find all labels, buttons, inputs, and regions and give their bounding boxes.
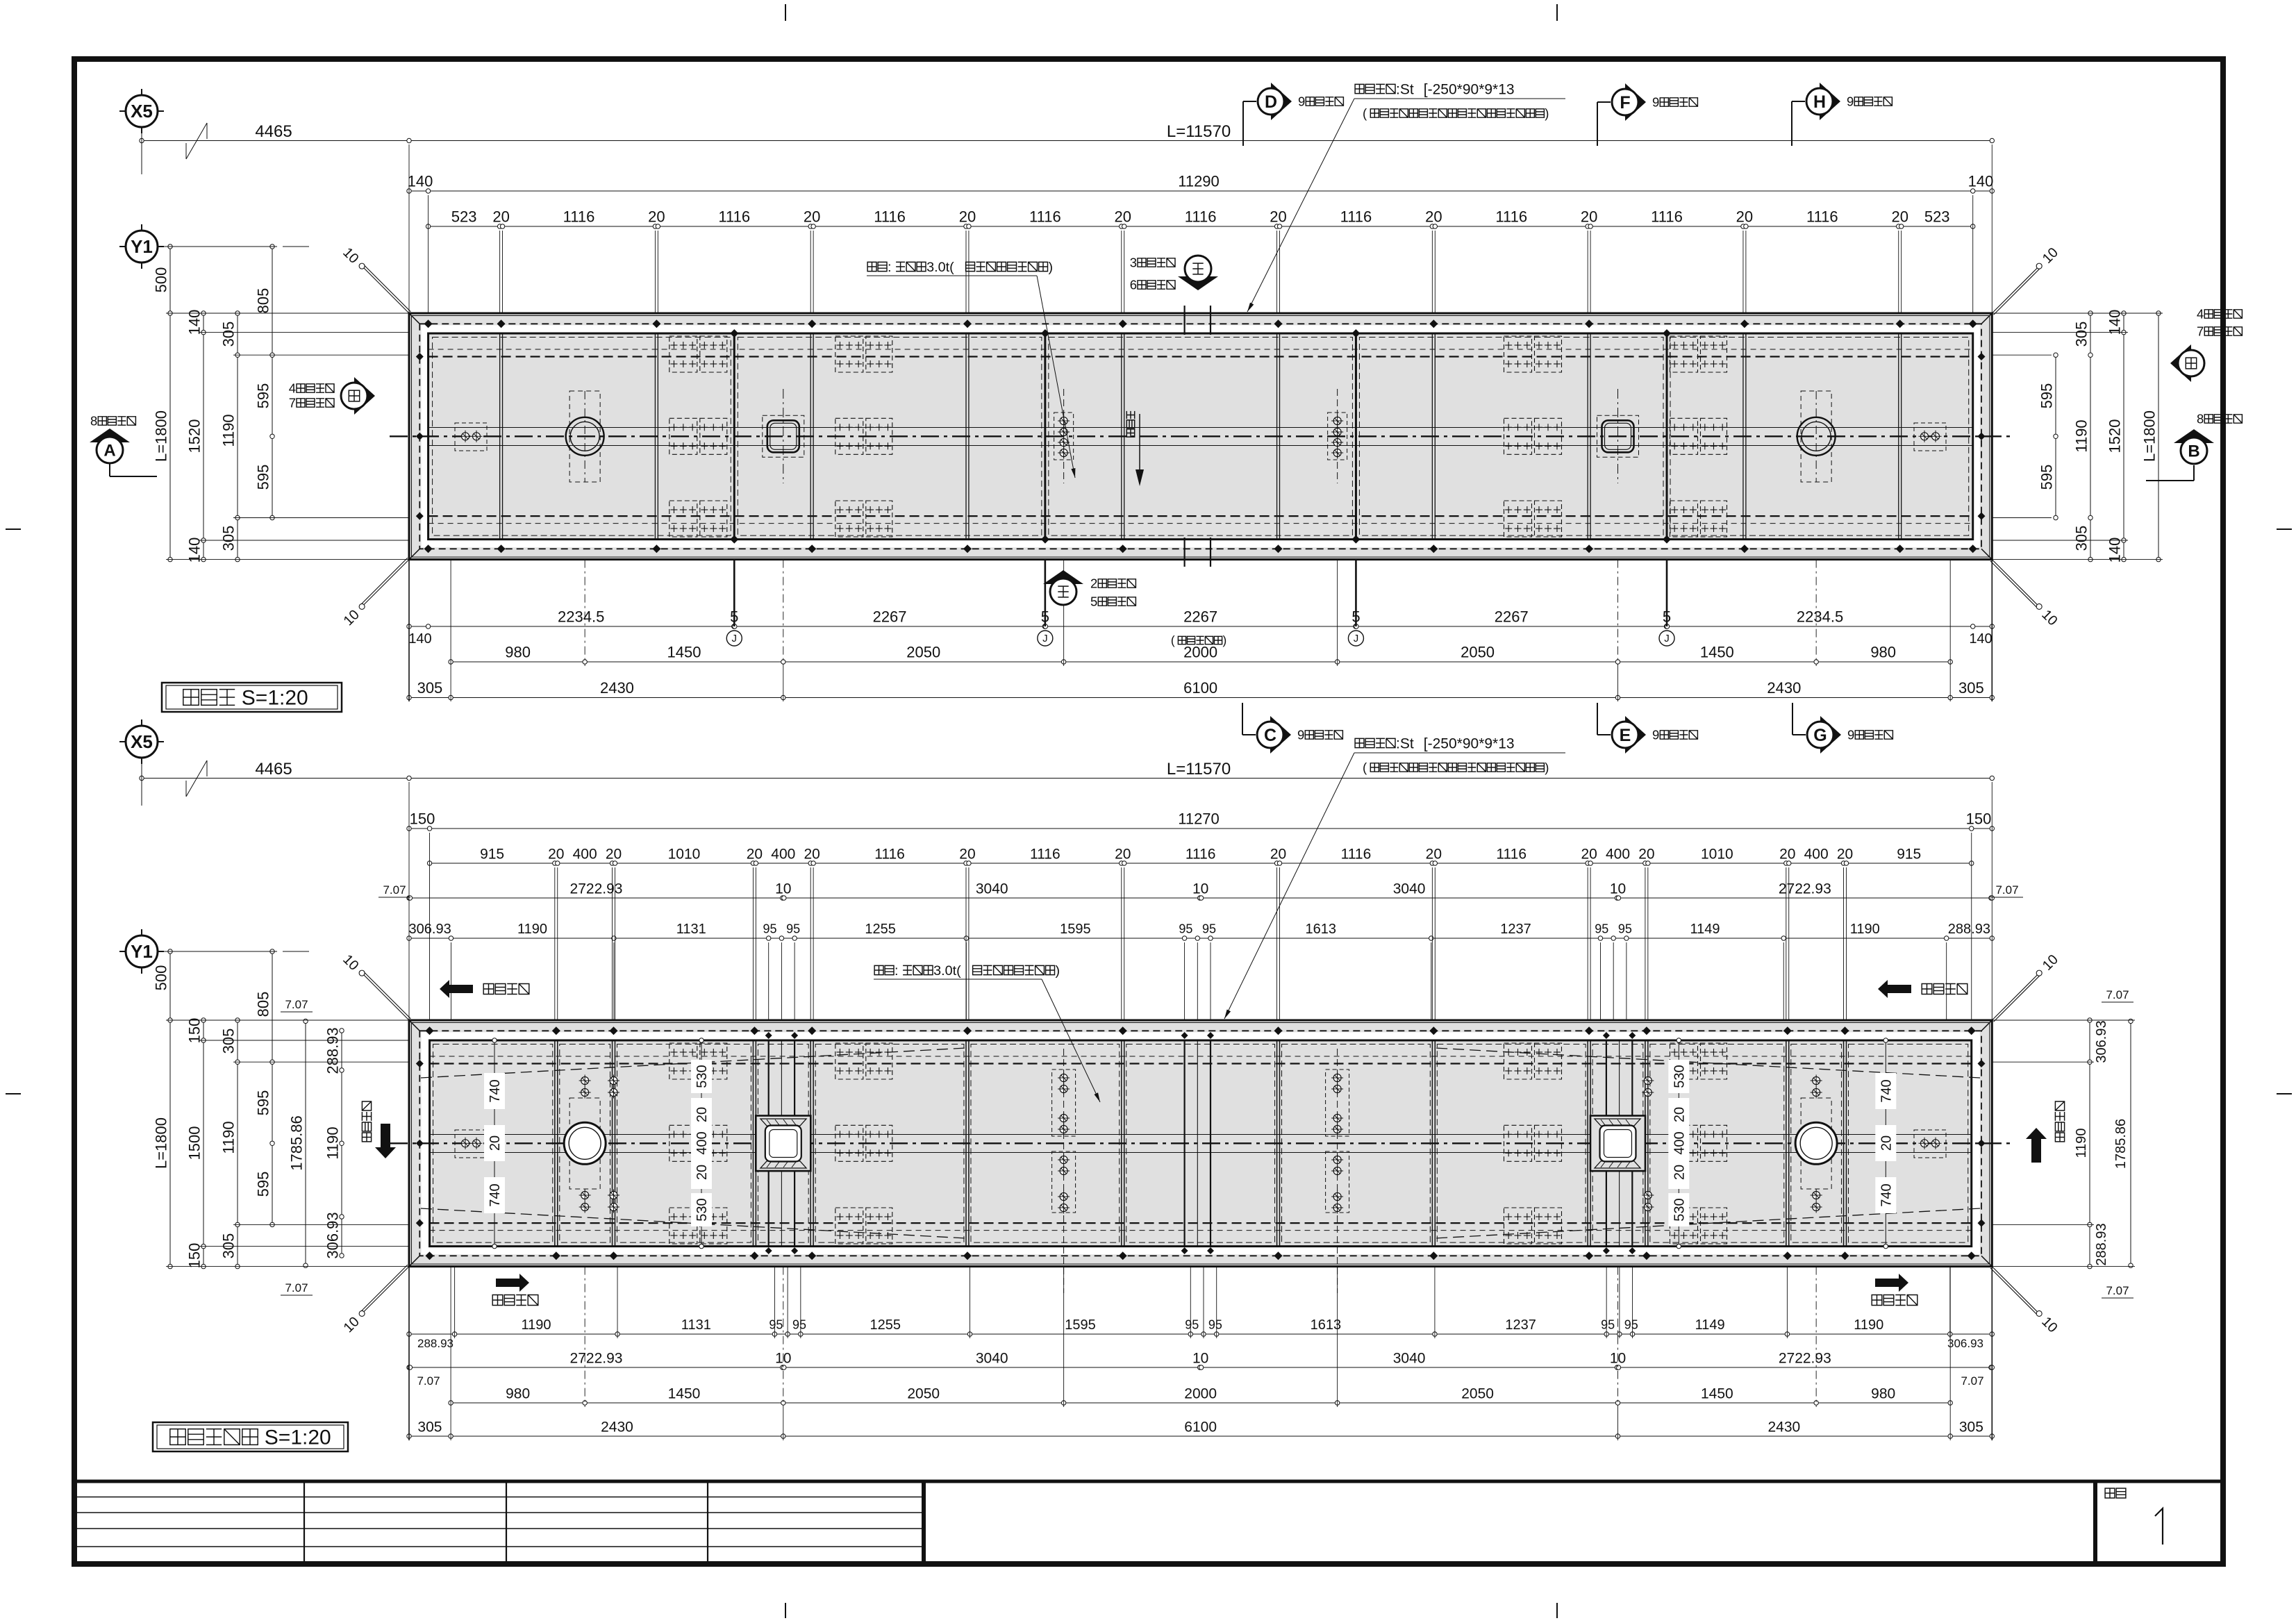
svg-text:288.93: 288.93 [417,1337,454,1350]
svg-text:523: 523 [451,208,477,226]
svg-text:20: 20 [1270,846,1286,862]
svg-text:3: 3 [1130,256,1137,270]
svg-text:J: J [732,633,738,644]
svg-text:4465: 4465 [255,122,292,141]
svg-text:150: 150 [1966,810,1992,828]
svg-text:1149: 1149 [1695,1317,1725,1333]
svg-text:3.0t(: 3.0t( [933,963,961,979]
svg-text:400: 400 [694,1131,710,1154]
svg-text:140: 140 [408,173,433,190]
svg-text:740: 740 [488,1079,503,1102]
svg-text:S=1:20: S=1:20 [242,687,308,710]
svg-text:1116: 1116 [1496,846,1526,862]
svg-text:7.07: 7.07 [285,1281,308,1295]
svg-text:6: 6 [1130,278,1137,292]
svg-text:400: 400 [771,846,795,862]
svg-text:95: 95 [1185,1317,1199,1331]
svg-text:1237: 1237 [1505,1317,1536,1333]
svg-text:20: 20 [1270,208,1286,226]
svg-text:140: 140 [1968,173,1994,190]
svg-text:288.93: 288.93 [1948,922,1990,937]
svg-text:9: 9 [1847,728,1854,742]
svg-text:7.07: 7.07 [2106,1284,2129,1297]
svg-text:20: 20 [1779,846,1795,862]
svg-text:288.93: 288.93 [324,1027,342,1074]
svg-text:95: 95 [769,1317,783,1331]
svg-text:L=1800: L=1800 [153,1117,170,1169]
svg-text:8: 8 [2197,412,2204,426]
svg-text:150: 150 [186,1018,203,1044]
svg-text:915: 915 [1897,846,1921,862]
svg-text:595: 595 [255,383,272,409]
svg-text:500: 500 [153,965,170,991]
svg-text:1190: 1190 [2073,419,2090,452]
svg-text:Y1: Y1 [131,941,153,962]
svg-text:B: B [2188,442,2199,460]
svg-text:2050: 2050 [907,1385,940,1401]
svg-text:2722.93: 2722.93 [1779,1350,1831,1366]
svg-text:7.07: 7.07 [383,883,406,897]
svg-text:1190: 1190 [1854,1317,1883,1333]
svg-text:2430: 2430 [1767,1419,1800,1435]
svg-text:3040: 3040 [976,881,1008,897]
svg-text:20: 20 [1581,208,1597,226]
svg-text:980: 980 [506,1385,530,1401]
svg-text:9: 9 [1652,95,1659,110]
svg-text:306.93: 306.93 [1947,1337,1983,1350]
svg-text:9: 9 [1847,94,1854,109]
svg-text:805: 805 [255,992,272,1017]
svg-text:10: 10 [1610,881,1626,897]
svg-text:J: J [1354,633,1359,644]
svg-text::: : [895,963,899,979]
svg-text:500: 500 [153,267,170,293]
svg-text:Y1: Y1 [131,236,153,257]
svg-text:595: 595 [255,465,272,490]
svg-text:305: 305 [1958,679,1984,697]
svg-text:[-250*90*9*13: [-250*90*9*13 [1424,735,1515,751]
svg-text:3040: 3040 [976,1350,1008,1366]
svg-text:95: 95 [1618,922,1632,935]
svg-text:1116: 1116 [874,846,905,862]
svg-text:): ) [1545,760,1549,775]
svg-text:5: 5 [1090,594,1097,609]
svg-text:20: 20 [1879,1135,1894,1151]
svg-text:4465: 4465 [255,760,292,779]
svg-text:(: ( [1171,633,1175,647]
svg-text:7: 7 [289,396,296,410]
svg-text:1190: 1190 [1850,922,1880,937]
svg-text:1190: 1190 [522,1317,551,1333]
svg-text:10: 10 [1192,1350,1208,1366]
svg-text:595: 595 [255,1090,272,1116]
svg-text:980: 980 [1870,644,1896,661]
svg-text:400: 400 [1672,1131,1687,1154]
svg-text:): ) [1056,963,1060,979]
svg-text:S=1:20: S=1:20 [265,1426,331,1449]
svg-text:20: 20 [747,846,763,862]
svg-text:1116: 1116 [1341,846,1372,862]
svg-text:2000: 2000 [1184,1385,1217,1401]
svg-text:95: 95 [1179,922,1192,935]
svg-text:523: 523 [1924,208,1950,226]
svg-text:20: 20 [548,846,564,862]
svg-text:E: E [1620,726,1631,745]
svg-text:1500: 1500 [186,1126,203,1160]
svg-text:95: 95 [1208,1317,1222,1331]
svg-text:J: J [1042,633,1048,644]
svg-text:L=1800: L=1800 [2141,410,2158,462]
svg-text:1190: 1190 [2074,1128,2089,1158]
svg-text:95: 95 [1202,922,1216,935]
svg-text:20: 20 [1581,846,1597,862]
svg-text:20: 20 [1837,846,1853,862]
svg-text:305: 305 [417,679,443,697]
svg-text:9: 9 [1297,728,1304,742]
svg-text::St: :St [1396,735,1414,751]
svg-text:530: 530 [1672,1065,1687,1088]
svg-text:2267: 2267 [873,608,907,626]
svg-text:305: 305 [220,1233,238,1259]
svg-text:1116: 1116 [1185,208,1217,226]
svg-text:740: 740 [1879,1183,1894,1206]
svg-text:305: 305 [220,1029,238,1054]
svg-text:1116: 1116 [1495,208,1527,226]
svg-text:6100: 6100 [1184,1419,1217,1435]
svg-text:306.93: 306.93 [409,922,451,937]
svg-text:20: 20 [1115,208,1131,226]
svg-text:9: 9 [1652,728,1659,742]
svg-text:3040: 3040 [1393,1350,1426,1366]
svg-text:530: 530 [1672,1198,1687,1221]
svg-text:(: ( [1363,760,1367,775]
svg-text:C: C [1264,726,1276,745]
svg-text:20: 20 [804,846,820,862]
svg-text:20: 20 [492,208,509,226]
svg-text:740: 740 [488,1183,503,1206]
svg-text:2267: 2267 [1183,608,1217,626]
svg-text:595: 595 [2038,465,2056,490]
svg-text:1450: 1450 [668,1385,701,1401]
svg-text:2000: 2000 [1183,644,1217,661]
svg-text:20: 20 [488,1135,503,1151]
svg-text:1595: 1595 [1065,1317,1096,1333]
svg-text:400: 400 [1804,846,1829,862]
svg-text:1785.86: 1785.86 [2113,1119,2129,1169]
svg-text:1595: 1595 [1060,922,1091,937]
svg-text:95: 95 [1624,1317,1638,1331]
svg-text:7.07: 7.07 [285,998,308,1011]
svg-text:20: 20 [1638,846,1654,862]
svg-text:20: 20 [959,208,976,226]
svg-text:3.0t(: 3.0t( [926,260,954,275]
svg-text:X5: X5 [131,731,153,752]
svg-text:4: 4 [2197,307,2204,322]
svg-text:2: 2 [1090,576,1097,591]
svg-text:305: 305 [1959,1419,1983,1435]
svg-text:J: J [1664,633,1670,644]
svg-text:1190: 1190 [220,1121,238,1154]
svg-text:7.07: 7.07 [2106,988,2129,1001]
svg-text:1450: 1450 [1700,644,1734,661]
svg-text:305: 305 [2073,322,2090,347]
svg-text:2430: 2430 [1767,679,1801,697]
svg-text:F: F [1620,93,1630,113]
svg-text:3040: 3040 [1393,881,1426,897]
svg-text:1613: 1613 [1306,922,1337,937]
svg-text:1116: 1116 [718,208,750,226]
svg-text:1255: 1255 [865,922,896,937]
svg-text:150: 150 [410,810,435,828]
svg-text:740: 740 [1879,1079,1894,1102]
svg-text:20: 20 [694,1165,710,1180]
svg-text:1190: 1190 [220,414,238,447]
svg-text:1116: 1116 [1029,208,1061,226]
svg-text:95: 95 [1601,1317,1615,1331]
svg-text:1450: 1450 [667,644,701,661]
svg-text:95: 95 [792,1317,806,1331]
svg-text:20: 20 [1736,208,1753,226]
svg-text:95: 95 [763,922,776,935]
svg-text:595: 595 [255,1172,272,1197]
svg-text:915: 915 [480,846,504,862]
svg-text:1010: 1010 [1701,846,1733,862]
svg-text:7: 7 [2197,324,2204,339]
svg-text:530: 530 [694,1198,710,1221]
svg-text:2050: 2050 [906,644,940,661]
svg-text:20: 20 [1426,846,1442,862]
svg-text::: : [888,260,892,275]
svg-text:4: 4 [289,381,296,396]
svg-text:G: G [1813,726,1827,745]
svg-text:L=11570: L=11570 [1167,760,1231,779]
svg-text:400: 400 [1606,846,1630,862]
svg-text:2430: 2430 [601,1419,633,1435]
svg-text:9: 9 [1298,94,1305,109]
svg-text:95: 95 [1595,922,1608,935]
svg-text:305: 305 [2073,526,2090,551]
svg-text:1131: 1131 [681,1317,711,1333]
svg-text:2234.5: 2234.5 [1797,608,1843,626]
svg-text:2722.93: 2722.93 [570,1350,623,1366]
svg-text:1520: 1520 [2106,419,2124,453]
svg-text:305: 305 [417,1419,442,1435]
svg-text:2050: 2050 [1461,644,1495,661]
svg-text:): ) [1049,260,1054,275]
svg-text:1785.86: 1785.86 [288,1115,306,1171]
svg-text:6100: 6100 [1183,679,1217,697]
svg-text:980: 980 [1871,1385,1895,1401]
svg-text:140: 140 [186,538,203,563]
svg-text:8: 8 [90,414,97,428]
svg-text:(: ( [1363,106,1367,121]
svg-text:95: 95 [786,922,800,935]
svg-text:306.93: 306.93 [324,1212,342,1258]
svg-text:L=1800: L=1800 [153,410,170,462]
svg-text:H: H [1813,92,1826,112]
svg-text:): ) [1223,633,1227,647]
svg-text:20: 20 [1891,208,1908,226]
svg-text:140: 140 [1969,631,1992,647]
svg-text:20: 20 [1425,208,1442,226]
svg-text:305: 305 [220,526,238,551]
svg-text:1116: 1116 [1651,208,1683,226]
svg-text:1116: 1116 [1030,846,1060,862]
svg-text:20: 20 [1672,1107,1687,1122]
svg-text:10: 10 [775,881,791,897]
svg-text:1520: 1520 [186,419,203,453]
svg-text:2267: 2267 [1495,608,1529,626]
svg-text:1116: 1116 [1186,846,1216,862]
svg-text:1116: 1116 [874,208,906,226]
svg-text:288.93: 288.93 [2094,1223,2109,1265]
svg-text:400: 400 [573,846,597,862]
svg-text:20: 20 [606,846,622,862]
svg-text:1613: 1613 [1311,1317,1342,1333]
svg-text:X5: X5 [131,101,153,122]
svg-text:20: 20 [804,208,820,226]
svg-text:2430: 2430 [600,679,634,697]
svg-text:140: 140 [408,631,431,647]
svg-text:1255: 1255 [870,1317,901,1333]
svg-text:150: 150 [186,1243,203,1269]
svg-text::St: :St [1396,81,1414,97]
svg-text:2234.5: 2234.5 [558,608,604,626]
svg-text:7.07: 7.07 [1961,1374,1983,1388]
svg-text:11290: 11290 [1178,173,1220,190]
svg-text:1131: 1131 [676,922,706,937]
svg-text:10: 10 [1192,881,1208,897]
svg-text:11270: 11270 [1178,810,1220,828]
svg-text:1116: 1116 [1806,208,1838,226]
svg-text:980: 980 [505,644,531,661]
svg-text:20: 20 [694,1107,710,1122]
svg-text:805: 805 [255,288,272,314]
svg-text:306.93: 306.93 [2094,1020,2109,1063]
svg-text:20: 20 [1672,1165,1687,1180]
svg-text:7.07: 7.07 [417,1374,440,1388]
svg-text:7.07: 7.07 [1995,883,2018,897]
svg-text:20: 20 [1115,846,1131,862]
svg-text:[-250*90*9*13: [-250*90*9*13 [1424,81,1515,97]
svg-text:305: 305 [220,322,238,347]
svg-text:530: 530 [694,1065,710,1088]
svg-text:1190: 1190 [324,1126,342,1159]
svg-text:20: 20 [648,208,665,226]
svg-text:1450: 1450 [1701,1385,1733,1401]
svg-text:D: D [1265,92,1277,112]
svg-text:140: 140 [2106,538,2124,563]
svg-text:1116: 1116 [563,208,595,226]
svg-text:1237: 1237 [1500,922,1531,937]
svg-text:20: 20 [959,846,975,862]
svg-text:1010: 1010 [668,846,701,862]
svg-text:A: A [103,441,115,460]
svg-text:1149: 1149 [1690,922,1720,937]
svg-text:L=11570: L=11570 [1167,122,1231,141]
svg-text:595: 595 [2038,383,2056,409]
svg-text:1116: 1116 [1340,208,1372,226]
svg-text:2050: 2050 [1461,1385,1494,1401]
svg-text:1190: 1190 [517,922,547,937]
svg-text:): ) [1545,106,1549,121]
